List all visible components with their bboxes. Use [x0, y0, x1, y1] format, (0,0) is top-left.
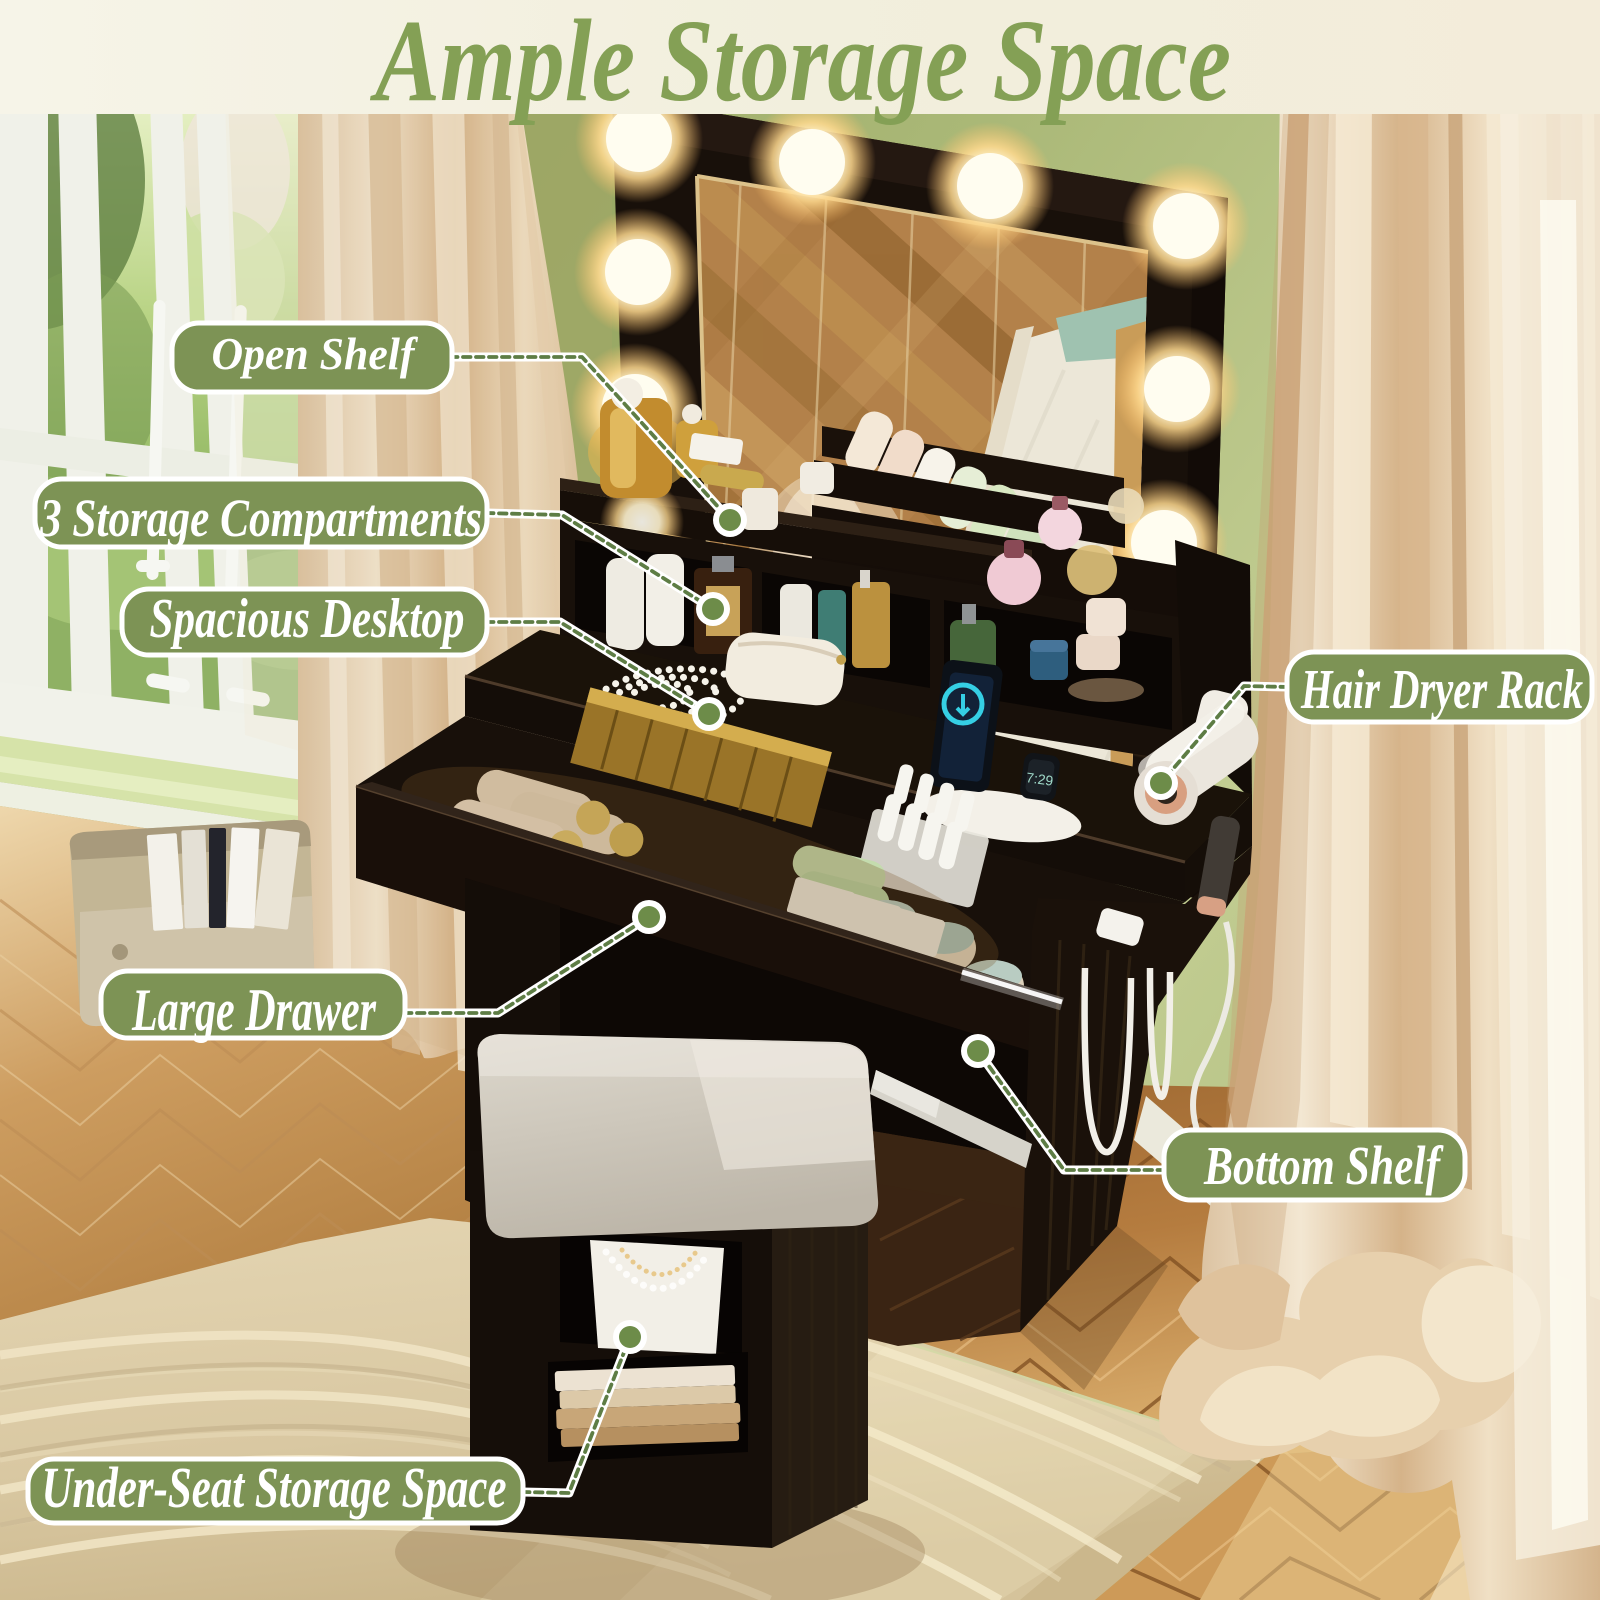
- svg-text:Bottom Shelf: Bottom Shelf: [1203, 1135, 1443, 1196]
- svg-text:Hair Dryer Rack: Hair Dryer Rack: [1300, 659, 1583, 721]
- svg-text:Under-Seat Storage Space: Under-Seat Storage Space: [42, 1455, 507, 1520]
- svg-text:Open Shelf: Open Shelf: [212, 329, 419, 379]
- svg-text:3 Storage Compartments: 3 Storage Compartments: [39, 488, 482, 548]
- svg-text:Spacious Desktop: Spacious Desktop: [150, 588, 465, 650]
- svg-text:Ample Storage Space: Ample Storage Space: [369, 0, 1231, 126]
- svg-text:Large Drawer: Large Drawer: [131, 977, 376, 1043]
